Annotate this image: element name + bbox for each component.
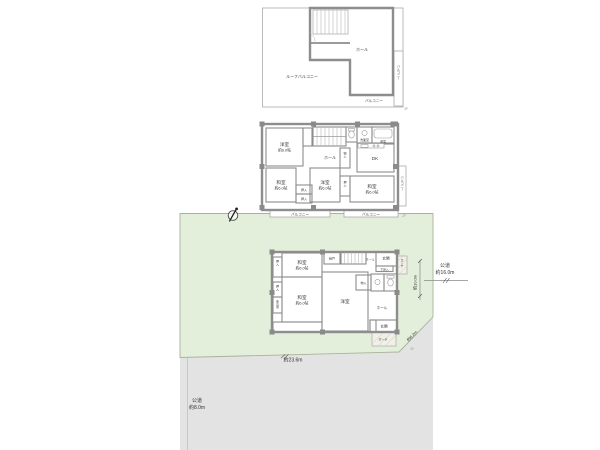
room-name: 和室 (297, 259, 307, 266)
closet-label: 押入 (301, 187, 307, 192)
dk-label: DK (372, 156, 379, 161)
room-name: 洋室 (320, 179, 330, 186)
floor-tag-2f: 2F (402, 214, 406, 218)
floor-plan-2f: 洋室 約6.0帖 和室 約6.0帖 洋室 約6.0帖 和室 約6.0帖 DK ホ… (260, 122, 407, 219)
toilet-icon (387, 276, 394, 287)
room-name: 洋室 (340, 298, 350, 305)
room-size: 約6.0帖 (319, 186, 332, 191)
nando-label: 納戸 (329, 256, 335, 261)
washbasin-icon (362, 130, 367, 135)
floor-tag-3f: 3F (404, 107, 408, 111)
balcony-label: バルコニー (291, 212, 309, 216)
bathtub-icon (374, 129, 392, 138)
closet-label: 押入 (276, 259, 280, 266)
storage-label: 物入 (360, 280, 366, 285)
side-right-dimension: 約10.0m (412, 274, 418, 290)
floorplan-image: 公道 約16.0m 約10.0m 約23.6m 公道 約8.0m 約6.2m ル… (0, 0, 600, 450)
room-name: 洋室 (280, 141, 290, 148)
closet-label: 押入 (343, 180, 347, 187)
road-bottom-name: 公道 (192, 397, 202, 404)
kitchen-sink-icon (358, 144, 384, 149)
room-size: 約6.0帖 (366, 190, 379, 195)
room-size: 約6.0帖 (296, 301, 309, 306)
hall-label: ホール (365, 257, 374, 262)
stairs-3f (313, 10, 348, 34)
room-name: 和室 (297, 294, 307, 301)
bath-label: 浴室 (380, 139, 386, 144)
porch-label: ポーチ (400, 258, 404, 268)
hall-label-3f: ホール (356, 47, 368, 52)
balcony-label: バルコニー (400, 176, 404, 191)
closet-label: 押入 (301, 196, 307, 201)
room-name: 和室 (367, 183, 377, 190)
frontage-dimension: 約23.6m (284, 357, 303, 364)
toilet-icon (349, 129, 355, 139)
floor-plan-page: 公道 約16.0m 約10.0m 約23.6m 公道 約8.0m 約6.2m ル… (0, 0, 600, 450)
road-bottom-width: 約8.0m (189, 404, 205, 411)
room-size: 約6.0帖 (296, 266, 309, 271)
porch-label: ポーチ (378, 337, 387, 342)
entrance-label: 玄関 (380, 324, 388, 329)
compass-icon (228, 208, 238, 222)
washroom-label: 洗面室 (360, 137, 369, 142)
balcony-label-3f-right: バルコニー (397, 65, 401, 80)
roof-balcony-label: ルーフバルコニー (286, 74, 318, 79)
room-name: 和室 (276, 179, 286, 186)
room-size: 約6.0帖 (278, 148, 291, 153)
hall-label: ホール (377, 305, 388, 310)
room-size: 約6.0帖 (275, 186, 288, 191)
road-right-width: 約16.0m (436, 269, 455, 276)
washbasin-icon (375, 279, 380, 284)
closet-label: 押入 (276, 284, 280, 291)
floor-plan-3f: ルーフバルコニー ホール バルコニー バルコニー 3F (263, 8, 409, 111)
balcony-label: バルコニー (362, 212, 380, 216)
entrance-label: 玄関 (382, 256, 390, 261)
floor-tag-1f: 1F (410, 347, 414, 351)
hall-label-2f: ホール (324, 155, 336, 160)
tokonoma-label: 床の間 (276, 299, 280, 309)
shoe-box-label: 下足入 (380, 267, 389, 271)
storage-label: 物入 (343, 151, 347, 158)
road-right-name: 公道 (440, 262, 450, 269)
balcony-label-3f-bottom: バルコニー (365, 99, 383, 103)
